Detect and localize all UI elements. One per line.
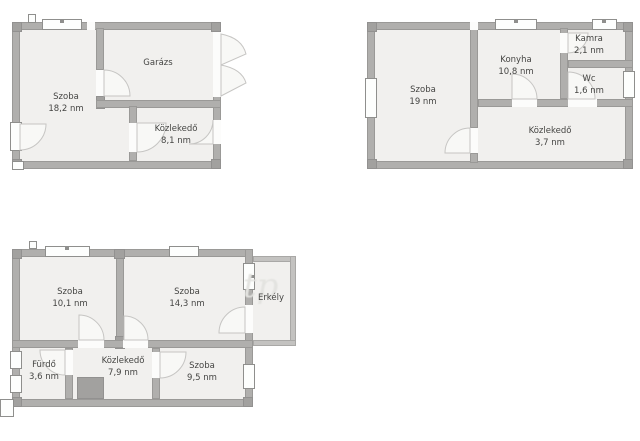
room-name: Garázs — [143, 58, 172, 70]
room-label-szoba: Szoba 18,2 nm — [48, 92, 83, 115]
floorplans-canvas: tp Szoba 18,2 nm Garázs Közlekedő 8,1 nm… — [0, 0, 640, 441]
room-label-kozlekedo: Közlekedő 8,1 nm — [155, 124, 198, 147]
door-arc — [219, 307, 245, 333]
room-area: 7,9 nm — [102, 368, 145, 380]
room-label-szoba: Szoba 19 nm — [409, 85, 436, 108]
room-name: Konyha — [498, 55, 533, 67]
garage-door-leaf — [221, 34, 246, 65]
room-name: Szoba — [187, 361, 217, 373]
room-label-wc: Wc 1,6 nm — [574, 74, 604, 97]
room-area: 19 nm — [409, 97, 436, 109]
room-label-erkely: Erkély — [258, 293, 284, 305]
room-area: 3,7 nm — [529, 138, 572, 150]
room-name: Szoba — [52, 287, 87, 299]
room-name: Szoba — [48, 92, 83, 104]
room-name: Szoba — [169, 287, 204, 299]
room-area: 10,8 nm — [498, 67, 533, 79]
room-area: 9,5 nm — [187, 373, 217, 385]
room-label-szoba: Szoba 9,5 nm — [187, 361, 217, 384]
room-name: Közlekedő — [155, 124, 198, 136]
door-arc — [445, 128, 470, 153]
room-label-szoba: Szoba 10,1 nm — [52, 287, 87, 310]
room-area: 10,1 nm — [52, 299, 87, 311]
door-arcs-layer — [0, 0, 640, 441]
room-name: Közlekedő — [529, 126, 572, 138]
door-arc — [124, 316, 148, 340]
room-label-garazs: Garázs — [143, 58, 172, 70]
door-arc — [104, 70, 130, 96]
room-area: 3,6 nm — [29, 372, 59, 384]
door-arc — [160, 352, 186, 378]
room-label-kozlekedo: Közlekedő 3,7 nm — [529, 126, 572, 149]
room-name: Wc — [574, 74, 604, 86]
room-name: Erkély — [258, 293, 284, 305]
room-name: Szoba — [409, 85, 436, 97]
room-label-szoba: Szoba 14,3 nm — [169, 287, 204, 310]
door-arc — [20, 124, 46, 150]
room-area: 1,6 nm — [574, 86, 604, 98]
room-label-furdo: Fürdő 3,6 nm — [29, 360, 59, 383]
room-label-konyha: Konyha 10,8 nm — [498, 55, 533, 78]
room-name: Kamra — [574, 34, 604, 46]
room-area: 2,1 nm — [574, 46, 604, 58]
room-label-kamra: Kamra 2,1 nm — [574, 34, 604, 57]
room-name: Fürdő — [29, 360, 59, 372]
room-area: 8,1 nm — [155, 136, 198, 148]
door-arc — [79, 315, 104, 340]
room-area: 18,2 nm — [48, 104, 83, 116]
room-area: 14,3 nm — [169, 299, 204, 311]
room-name: Közlekedő — [102, 356, 145, 368]
room-label-kozlekedo: Közlekedő 7,9 nm — [102, 356, 145, 379]
garage-door-leaf — [221, 65, 246, 96]
